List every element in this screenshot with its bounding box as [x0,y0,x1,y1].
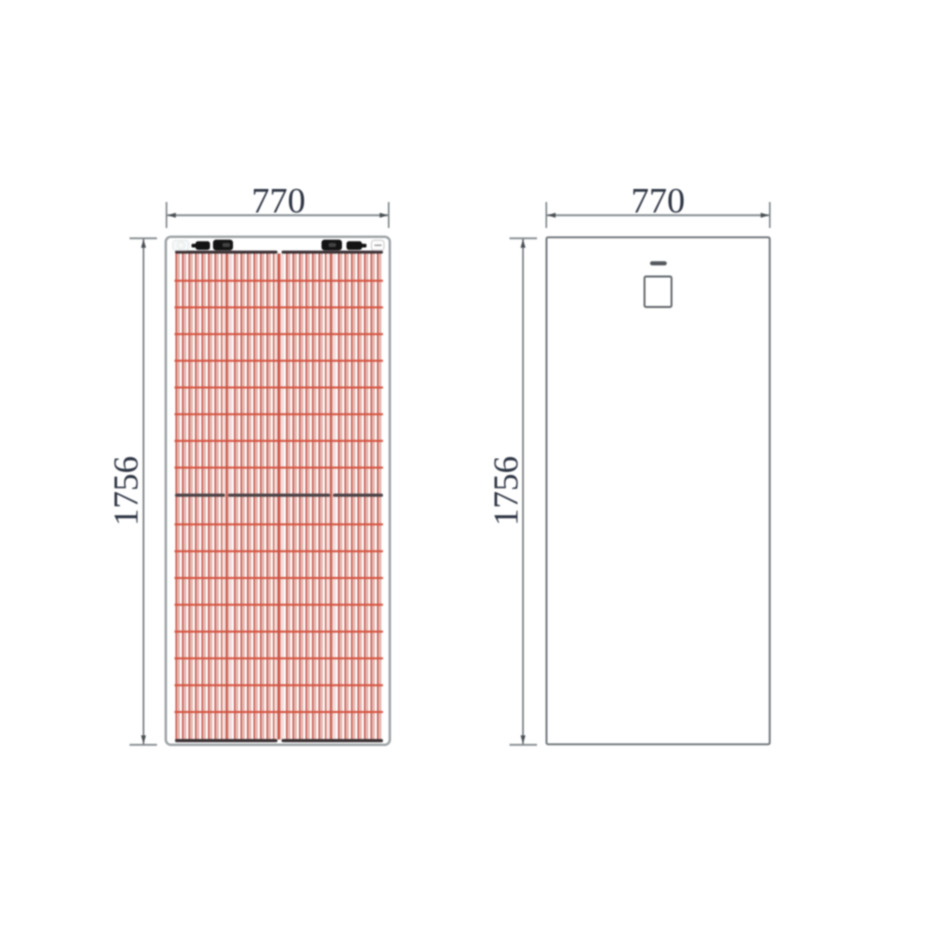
svg-text:1756: 1756 [487,456,526,526]
svg-text:770: 770 [252,181,306,221]
svg-text:1756: 1756 [107,456,146,526]
svg-text:770: 770 [631,181,685,221]
